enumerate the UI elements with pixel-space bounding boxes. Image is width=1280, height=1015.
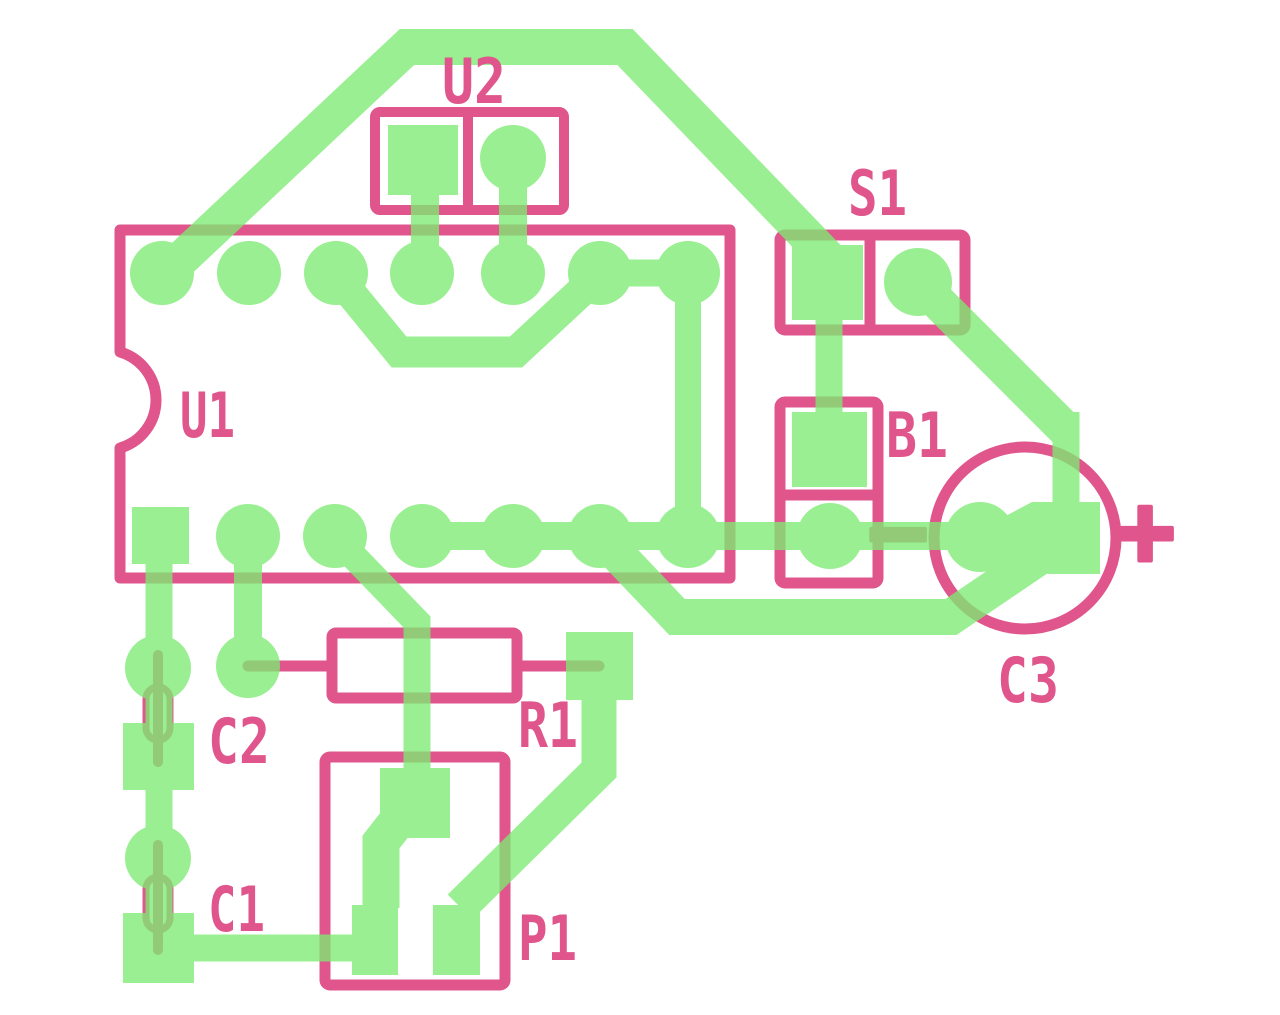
pad-square-p1-bottom-right[interactable] bbox=[433, 905, 480, 975]
pad[interactable] bbox=[656, 504, 720, 568]
pad-square-b1[interactable] bbox=[792, 412, 867, 487]
pad-square-c2[interactable] bbox=[123, 723, 194, 790]
pad-c1[interactable] bbox=[125, 825, 191, 891]
pad[interactable] bbox=[303, 504, 367, 568]
pad-square-c1[interactable] bbox=[123, 913, 194, 983]
pad[interactable] bbox=[216, 504, 280, 568]
pad-b1[interactable] bbox=[797, 503, 863, 569]
label-u1[interactable]: U1 bbox=[180, 379, 235, 452]
label-b1[interactable]: B1 bbox=[886, 399, 948, 472]
label-c3[interactable]: C3 bbox=[997, 644, 1059, 717]
copper-layer bbox=[123, 47, 1100, 983]
pad[interactable] bbox=[568, 241, 632, 305]
pad-u2[interactable] bbox=[480, 125, 546, 191]
pad[interactable] bbox=[481, 504, 545, 568]
label-c1[interactable]: C1 bbox=[208, 873, 265, 946]
pad[interactable] bbox=[130, 241, 194, 305]
pad[interactable] bbox=[390, 504, 454, 568]
pcb-canvas: − + bbox=[0, 0, 1280, 1015]
pad-square-p1-bottom-left[interactable] bbox=[352, 905, 398, 975]
pad[interactable] bbox=[481, 241, 545, 305]
label-c2[interactable]: C2 bbox=[208, 705, 270, 778]
pad-square-pin1[interactable] bbox=[132, 507, 189, 564]
pad-c2[interactable] bbox=[125, 635, 191, 701]
traces bbox=[159, 47, 1066, 948]
pads bbox=[123, 125, 1100, 983]
pad[interactable] bbox=[304, 241, 368, 305]
pad-square-s1[interactable] bbox=[792, 245, 863, 320]
label-r1[interactable]: R1 bbox=[518, 689, 578, 762]
pad-s1[interactable] bbox=[884, 248, 952, 316]
label-u2[interactable]: U2 bbox=[442, 45, 506, 118]
trace-u1-top-u-route[interactable] bbox=[336, 275, 599, 352]
label-p1[interactable]: P1 bbox=[518, 902, 577, 975]
label-s1[interactable]: S1 bbox=[848, 157, 907, 230]
pad[interactable] bbox=[568, 504, 632, 568]
pad[interactable] bbox=[217, 241, 281, 305]
pad[interactable] bbox=[656, 241, 720, 305]
pcb-diagram: − + bbox=[0, 0, 1280, 1015]
pad-r1-left[interactable] bbox=[216, 634, 280, 698]
pad-square-u2[interactable] bbox=[388, 125, 458, 195]
pad[interactable] bbox=[390, 241, 454, 305]
plus-mark: + bbox=[1115, 472, 1175, 589]
pad-square-p1-top[interactable] bbox=[380, 768, 450, 838]
